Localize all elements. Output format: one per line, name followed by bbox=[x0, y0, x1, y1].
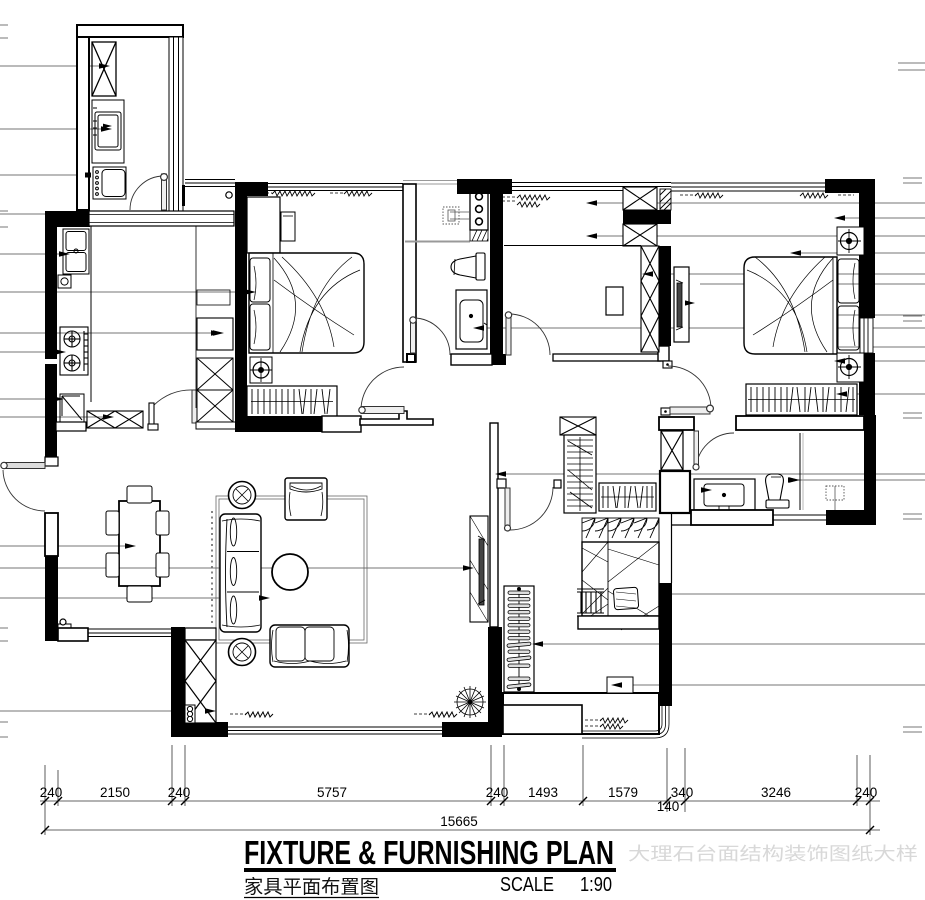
svg-text:FIXTURE & FURNISHING PLAN: FIXTURE & FURNISHING PLAN bbox=[244, 834, 614, 871]
svg-text:家具平面布置图: 家具平面布置图 bbox=[244, 876, 379, 898]
svg-text:240: 240 bbox=[40, 785, 63, 800]
svg-text:140: 140 bbox=[657, 799, 680, 814]
svg-text:240: 240 bbox=[486, 785, 509, 800]
svg-text:240: 240 bbox=[855, 785, 878, 800]
svg-text:5757: 5757 bbox=[317, 785, 347, 800]
svg-text:240: 240 bbox=[168, 785, 191, 800]
svg-text:1579: 1579 bbox=[608, 785, 638, 800]
svg-text:大理石台面结构装饰图纸大样: 大理石台面结构装饰图纸大样 bbox=[628, 844, 918, 864]
svg-text:SCALE: SCALE bbox=[500, 874, 554, 896]
svg-text:2150: 2150 bbox=[100, 785, 130, 800]
svg-text:1493: 1493 bbox=[528, 785, 558, 800]
svg-text:340: 340 bbox=[671, 785, 694, 800]
svg-text:15665: 15665 bbox=[440, 814, 478, 829]
svg-text:1:90: 1:90 bbox=[580, 874, 612, 896]
svg-text:3246: 3246 bbox=[761, 785, 791, 800]
